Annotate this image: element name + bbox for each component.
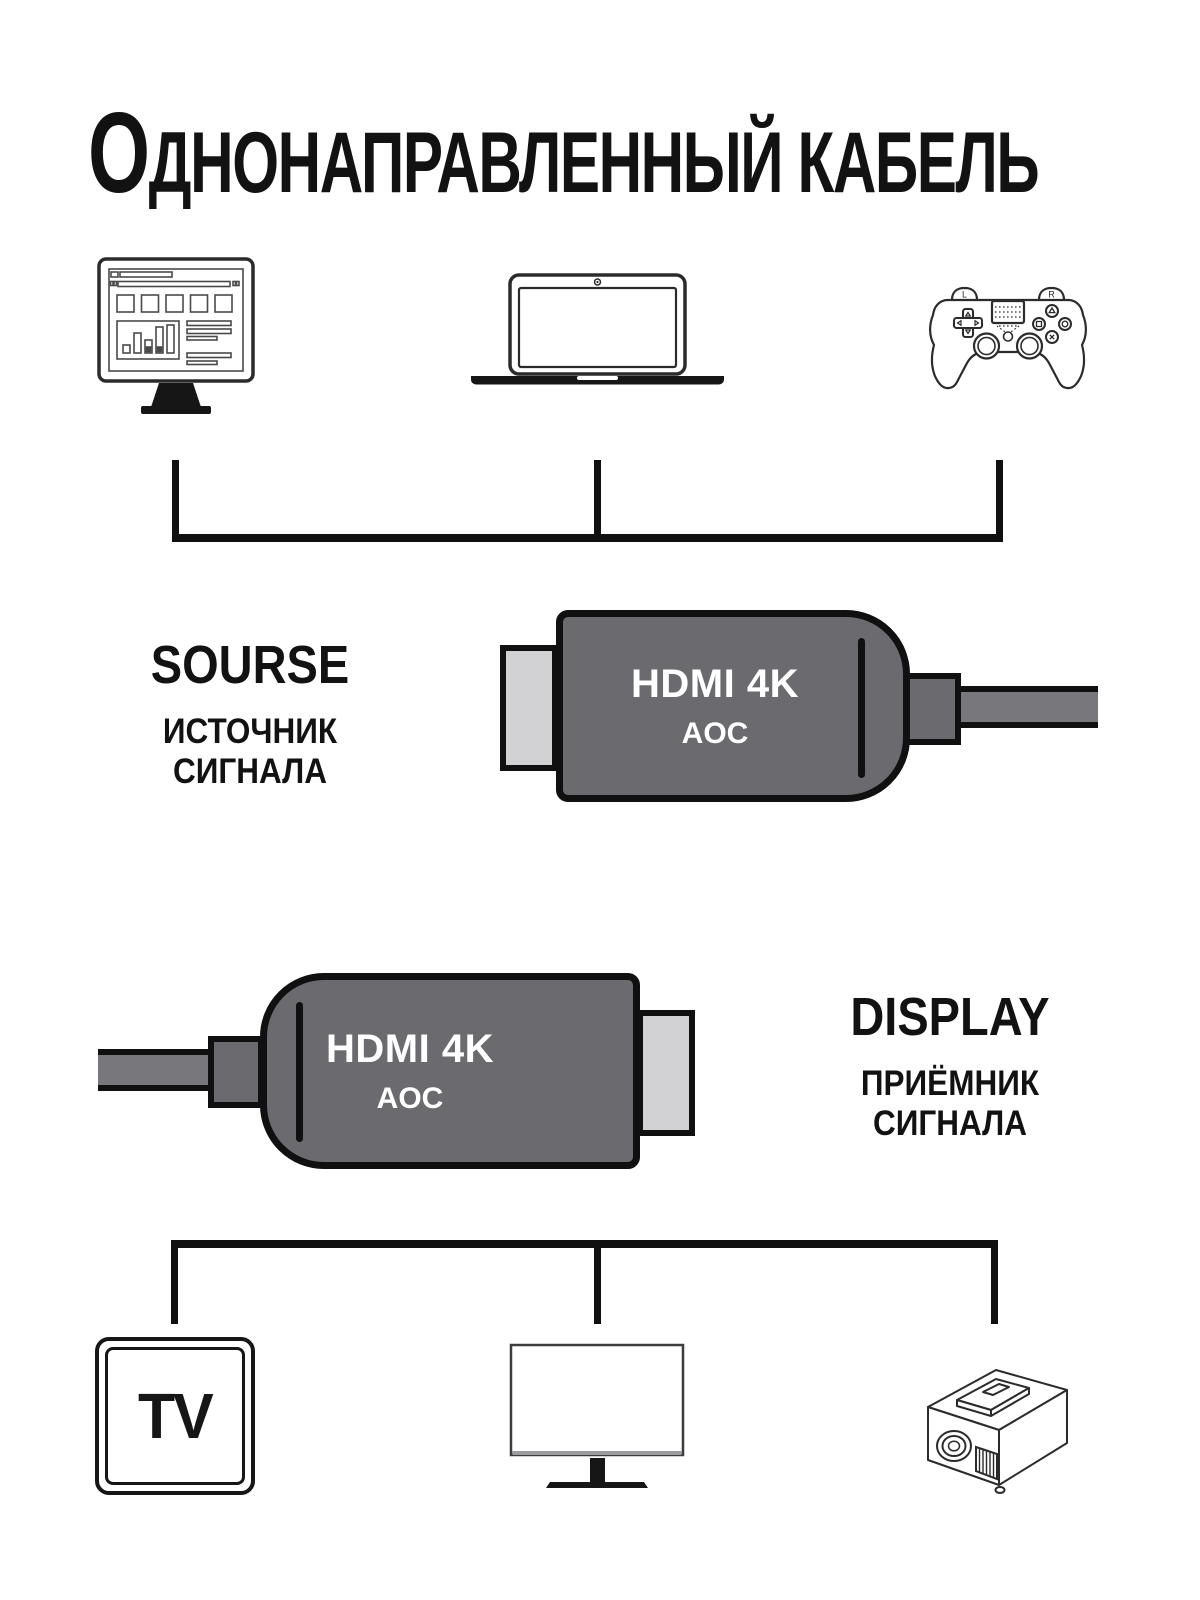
home-button (1004, 332, 1013, 341)
projector-foot (996, 1487, 1005, 1493)
aoc-text: AOC (682, 717, 749, 751)
bezel-strip (513, 1451, 682, 1455)
monitor-stand (151, 383, 201, 407)
page-title: ОДНОНАПРАВЛЕННЫЙ КАБЕЛЬ (88, 97, 1038, 211)
source-subtitle: ИСТОЧНИК СИГНАЛА (93, 712, 408, 792)
game-controller-icon: L R (900, 278, 1090, 403)
bracket-rail (172, 534, 1003, 542)
fiber-cable (98, 1049, 213, 1091)
laptop-icon (465, 272, 730, 394)
fiber-cable (958, 686, 1098, 728)
tv-icon: TV (95, 1337, 255, 1495)
display-label-block: DISPLAY ПРИЁМНИК СИГНАЛА (770, 986, 1130, 1144)
tv-label: TV (138, 1379, 212, 1453)
bracket-stem (996, 460, 1003, 542)
projector-icon (900, 1350, 1090, 1500)
bracket-stem (594, 1240, 601, 1324)
display-title: DISPLAY (793, 986, 1106, 1048)
monitor-icon (508, 1342, 693, 1497)
hdmi-4k-text: HDMI 4K (326, 1027, 494, 1072)
bracket-stem (172, 460, 179, 542)
hdmi-plug-tip (637, 1010, 695, 1136)
aoc-text: AOC (377, 1082, 444, 1116)
connector-label: HDMI 4K AOC (260, 973, 640, 1169)
monitor-base (546, 1482, 648, 1488)
connector-label: HDMI 4K AOC (556, 610, 910, 802)
gamepad-left-label: L (962, 290, 967, 300)
source-label-block: SOURSE ИСТОЧНИК СИГНАЛА (75, 634, 425, 792)
tv-screen: TV (105, 1347, 245, 1485)
infographic-page: ОДНОНАПРАВЛЕННЫЙ КАБЕЛЬ (0, 0, 1200, 1600)
display-subtitle: ПРИЁМНИК СИГНАЛА (788, 1064, 1112, 1144)
monitor-base (141, 406, 211, 414)
strain-relief (208, 1036, 264, 1108)
title-lead-letter: О (88, 90, 149, 217)
bracket-stem (991, 1240, 998, 1324)
bracket-stem (594, 460, 601, 542)
hdmi-4k-text: HDMI 4K (631, 662, 799, 707)
bracket-stem (171, 1240, 178, 1324)
monitor-neck (590, 1458, 605, 1482)
source-title: SOURSE (98, 634, 403, 696)
hdmi-plug-tip (500, 645, 558, 771)
desktop-computer-icon (95, 255, 257, 417)
gamepad-right-label: R (1048, 290, 1055, 300)
strain-relief (903, 673, 961, 745)
title-rest: ДНОНАПРАВЛЕННЫЙ КАБЕЛЬ (149, 115, 1039, 211)
bracket-rail (171, 1240, 998, 1248)
